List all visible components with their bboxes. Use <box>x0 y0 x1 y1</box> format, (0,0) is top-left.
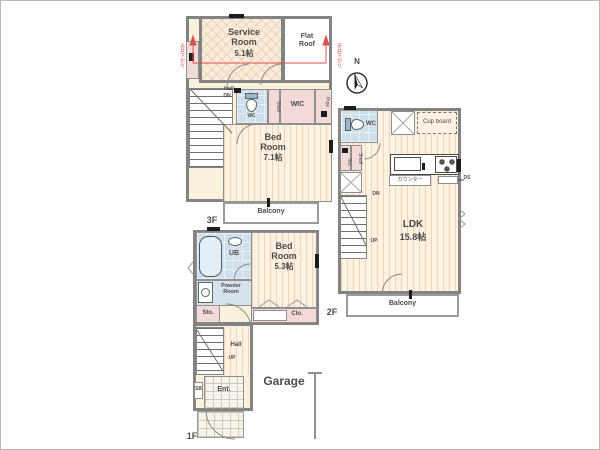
1f-sink-bowl-icon <box>201 288 210 297</box>
2f-sto-label: Sto. <box>341 154 351 170</box>
3f-shelf-label: Shelf <box>268 92 280 122</box>
1f-bedroom-label: Bed Room <box>249 241 319 261</box>
3f-ceiling-note-left: 天井下がり <box>174 31 184 79</box>
3f-pipe-label: Pipe <box>317 92 329 112</box>
3f-flat-roof-label: Flat Roof <box>284 33 330 49</box>
2f-fridge-space <box>340 172 362 193</box>
3f-bedroom-size: 7.1帖 <box>238 154 308 163</box>
1f-bedroom-size: 5.3帖 <box>249 263 319 272</box>
2f-ldk-label: LDK <box>378 219 448 230</box>
2f-cupboard-label: Cup board <box>417 119 457 126</box>
3f-wic-label: WIC <box>280 101 315 109</box>
1f-stairs <box>196 327 224 375</box>
1f-washbasin-icon <box>228 237 242 246</box>
1f-closet-box <box>253 310 287 321</box>
1f-ub-label: UB <box>223 250 245 258</box>
1f-entrance-label: Ent. <box>211 386 237 394</box>
2f-window-mark-right <box>457 159 461 172</box>
2f-wc-label: WC <box>363 121 379 128</box>
1f-hall-floor <box>224 327 250 375</box>
3f-service-room-label: Service Room <box>204 27 284 47</box>
1f-hall-label: Hall <box>221 342 251 349</box>
3f-balcony-label: Balcony <box>223 208 319 216</box>
3f-bedroom-label: Bed Room <box>238 132 308 152</box>
2f-shelf-label: Shelf <box>352 148 362 170</box>
2f-north-label: N <box>346 58 368 67</box>
1f-bathtub-icon <box>199 236 222 277</box>
north-arrow-icon <box>345 71 369 95</box>
1f-closet-label: Clo. <box>284 311 310 318</box>
2f-stairs <box>340 195 367 259</box>
3f-window-mark <box>229 14 244 18</box>
1f-window-mark-top <box>207 227 220 231</box>
2f-kitchen-sink-icon <box>394 157 421 171</box>
1f-shoe-box-label: SB <box>193 387 204 393</box>
1f-up-label: UP <box>221 356 243 362</box>
3f-dn-label: DN <box>218 94 236 100</box>
2f-dn-label: DN <box>368 192 384 198</box>
3f-closet-handle <box>189 53 194 61</box>
1f-storage-label: Sto. <box>196 310 220 317</box>
3f-hall-label: Hall <box>218 86 240 92</box>
2f-window-mark-top <box>344 106 356 110</box>
2f-balcony-label: Balcony <box>346 300 459 308</box>
3f-service-room-size: 5.1帖 <box>204 50 284 59</box>
3f-flat-roof <box>282 16 332 83</box>
2f-counter-label: カウンター <box>389 178 431 184</box>
1f-porch <box>197 411 244 438</box>
floor-plan-page: Service Room 5.1帖 Flat Roof Hall DN WC S… <box>0 0 600 450</box>
3f-window-mark-right <box>329 140 333 153</box>
3f-ceiling-note-right: 天井下がり <box>331 31 341 79</box>
1f-garage-label: Garage <box>249 375 319 388</box>
2f-kitchen-faucet-icon <box>422 163 425 170</box>
1f-floor-label: 1F <box>183 431 201 441</box>
3f-wc-label: WC <box>236 114 267 120</box>
1f-powder-room-label: Powder Room <box>210 283 252 295</box>
3f-floor-label: 3F <box>203 215 221 225</box>
2f-sto-hanger-icon <box>342 148 348 153</box>
2f-ds-box <box>438 176 458 184</box>
2f-balcony-divider <box>409 290 412 299</box>
2f-floor-label: 2F <box>323 307 341 317</box>
3f-balcony-divider <box>267 198 270 207</box>
2f-open-hatch-box <box>391 111 415 135</box>
2f-kitchen-stove-icon <box>435 156 457 173</box>
2f-ds-label: DS <box>460 176 474 182</box>
2f-ldk-size: 15.8帖 <box>378 232 448 242</box>
